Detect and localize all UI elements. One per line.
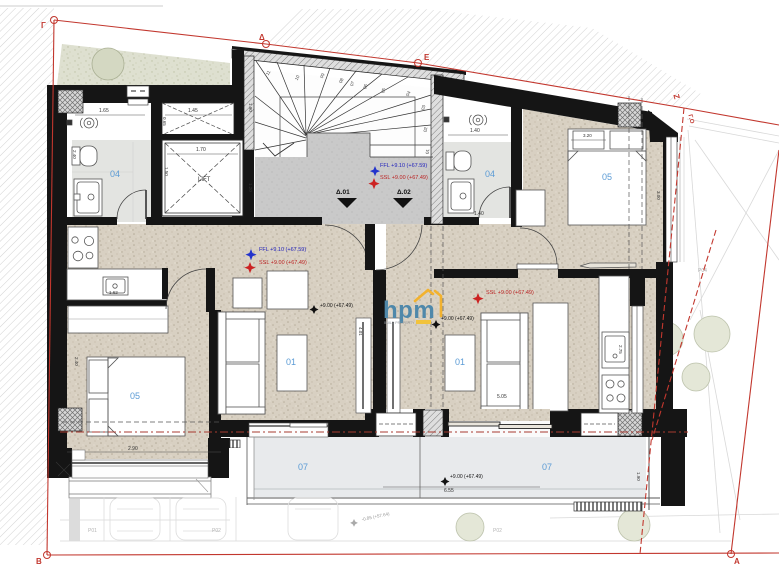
svg-text:04: 04 — [110, 169, 120, 179]
svg-text:05: 05 — [602, 172, 612, 182]
svg-text:+9.00 (+67.49): +9.00 (+67.49) — [320, 303, 353, 309]
svg-text:P01: P01 — [88, 528, 97, 534]
svg-text:P02: P02 — [212, 528, 221, 534]
svg-text:BUILD PROPERTY: BUILD PROPERTY — [384, 321, 415, 325]
svg-text:05: 05 — [130, 391, 140, 401]
svg-text:04: 04 — [485, 169, 495, 179]
svg-text:01: 01 — [455, 357, 465, 367]
svg-text:1.65: 1.65 — [99, 108, 109, 114]
svg-text:Γ: Γ — [41, 21, 46, 30]
svg-text:2.40: 2.40 — [74, 357, 79, 366]
svg-text:07: 07 — [542, 462, 552, 472]
svg-text:07: 07 — [298, 462, 308, 472]
svg-text:3.20: 3.20 — [583, 133, 592, 138]
svg-text:Δ.02: Δ.02 — [397, 189, 411, 196]
svg-text:6.55: 6.55 — [444, 488, 454, 494]
svg-text:4.01: 4.01 — [358, 327, 363, 336]
svg-text:1.50: 1.50 — [164, 167, 169, 176]
svg-text:B: B — [36, 557, 42, 566]
svg-text:+9.00 (+67.49): +9.00 (+67.49) — [450, 474, 483, 480]
svg-text:1.90: 1.90 — [248, 103, 253, 112]
svg-text:hpm: hpm — [383, 297, 435, 324]
svg-text:2.40: 2.40 — [72, 150, 77, 159]
svg-text:SSL +9.00 (+67.49): SSL +9.00 (+67.49) — [259, 260, 307, 266]
svg-text:1.45: 1.45 — [188, 108, 198, 114]
svg-text:1.90: 1.90 — [636, 472, 641, 481]
svg-text:2.90: 2.90 — [128, 446, 138, 452]
svg-text:1.40: 1.40 — [470, 128, 480, 134]
svg-text:E: E — [424, 53, 430, 62]
svg-text:Δ: Δ — [259, 33, 265, 42]
svg-text:3.00: 3.00 — [656, 191, 661, 200]
svg-text:A: A — [734, 557, 740, 566]
svg-text:Δ.01: Δ.01 — [336, 189, 350, 196]
svg-text:FFL +9.10 (+67.59): FFL +9.10 (+67.59) — [380, 163, 427, 169]
svg-text:1.70: 1.70 — [196, 147, 206, 153]
svg-text:1.40: 1.40 — [474, 211, 484, 217]
svg-text:1.62: 1.62 — [109, 290, 118, 295]
svg-text:LIFT: LIFT — [198, 177, 211, 183]
svg-text:0.65: 0.65 — [162, 117, 167, 126]
svg-text:1.20: 1.20 — [248, 183, 253, 192]
svg-text:FFL +9.10 (+67.59): FFL +9.10 (+67.59) — [259, 247, 306, 253]
svg-text:P02: P02 — [493, 528, 502, 534]
svg-text:01: 01 — [425, 148, 430, 154]
svg-text:SSL +9.00 (+67.49): SSL +9.00 (+67.49) — [486, 290, 534, 296]
svg-text:2.75: 2.75 — [618, 345, 623, 354]
svg-text:+9.00 (+67.49): +9.00 (+67.49) — [441, 316, 474, 322]
svg-text:5.05: 5.05 — [497, 394, 507, 400]
svg-text:01: 01 — [286, 357, 296, 367]
svg-text:SSL +9.00 (+67.49): SSL +9.00 (+67.49) — [380, 175, 428, 181]
